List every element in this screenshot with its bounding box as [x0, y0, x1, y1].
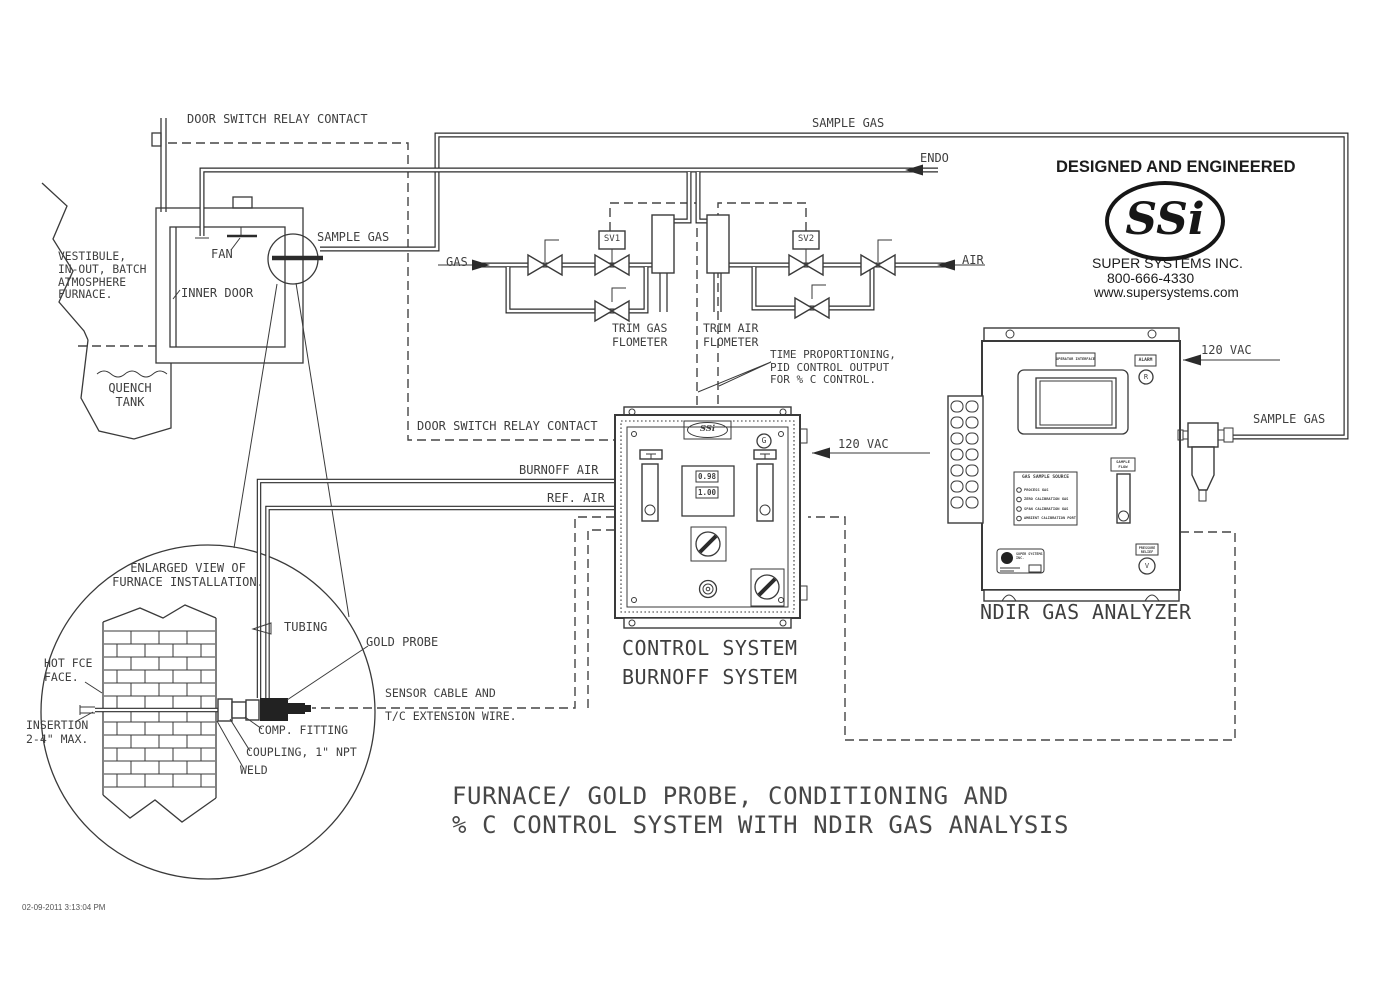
enlarged-view-label: ENLARGED VIEW OF FURNACE INSTALLATION. — [104, 561, 272, 589]
air-bypass-pipe — [754, 267, 872, 308]
filter-fitting — [1224, 428, 1233, 442]
sensor-cable-label-1: SENSOR CABLE AND — [385, 687, 496, 701]
analyzer-top-tab — [984, 328, 1179, 341]
relief-label: PRESSURE RELIEF — [1136, 546, 1158, 555]
ref-flow-tube — [757, 464, 773, 521]
vestibule-label: VESTIBULE, IN-OUT, BATCH ATMOSPHERE FURN… — [58, 251, 146, 302]
wall-top-jag — [103, 605, 216, 622]
filter-drain — [1199, 490, 1206, 501]
filter-head — [1188, 423, 1218, 447]
ref-air-pipe — [268, 508, 616, 698]
gas-bypass-handle — [612, 288, 626, 302]
endo-pipe — [202, 170, 938, 236]
sensor-cable-wire — [312, 517, 615, 708]
endo-label: ENDO — [920, 151, 949, 165]
controller-pv-value: 0.98 — [696, 473, 718, 482]
drawing-title-line1: FURNACE/ GOLD PROBE, CONDITIONING AND — [452, 782, 1009, 810]
air-flow-arrow — [937, 260, 955, 271]
interface-label: OPERATOR INTERFACE — [1056, 357, 1095, 361]
trim-air-flowmeter — [707, 215, 729, 273]
gold-probe-label: GOLD PROBE — [366, 635, 438, 649]
compression-fitting — [246, 700, 259, 720]
burnoff-air-pipe — [259, 481, 615, 698]
endo-flow-arrow — [905, 165, 923, 176]
weld-coupling — [218, 699, 232, 721]
inner-door-label: INNER DOOR — [181, 286, 253, 300]
control-logo-text: SSi — [687, 424, 728, 434]
quench-water-line — [97, 371, 167, 377]
schematic-linework — [0, 0, 1376, 1000]
control-system-label: CONTROL SYSTEM BURNOFF SYSTEM — [622, 634, 798, 691]
source-option-2: ZERO CALIBRATION GAS — [1024, 497, 1068, 501]
source-option-1: PROCESS GAS — [1024, 488, 1048, 492]
probe-head — [260, 698, 288, 721]
source-option-3: SPAN CALIBRATION GAS — [1024, 507, 1068, 511]
filter-bowl — [1192, 447, 1214, 490]
wall-bottom-jag — [103, 795, 216, 822]
ground-label: G — [757, 436, 771, 445]
quench-tank-label: QUENCH TANK — [95, 381, 165, 409]
door-switch-relay-label-mid: DOOR SWITCH RELAY CONTACT — [417, 419, 598, 433]
tubing-label: TUBING — [284, 620, 327, 634]
branding-website: www.supersystems.com — [1094, 285, 1239, 301]
trim-air-flowmeter-tube — [714, 273, 721, 312]
trim-gas-flowmeter-tube — [660, 273, 667, 312]
air-label: AIR — [962, 253, 984, 267]
time-prop-leaders — [698, 362, 771, 392]
control-vac-label: 120 VAC — [838, 437, 889, 451]
sv1-label: SV1 — [599, 234, 625, 245]
air-bypass-handle — [812, 285, 826, 299]
ssi-logo: SSi — [1105, 181, 1225, 261]
sample-gas-label-analyzer: SAMPLE GAS — [1253, 412, 1325, 426]
tc-extension-wire — [588, 530, 615, 708]
door-switch-relay-label-top: DOOR SWITCH RELAY CONTACT — [187, 112, 368, 126]
insertion-label: INSERTION 2-4" MAX. — [26, 719, 88, 746]
probe-cable-end — [305, 705, 311, 712]
gold-probe-leader — [287, 646, 368, 700]
tag-logo-dot — [1001, 552, 1013, 564]
drawing-title-line2: % C CONTROL SYSTEM WITH NDIR GAS ANALYSI… — [452, 811, 1069, 839]
relief-valve-glyph: V — [1141, 562, 1153, 570]
trim-air-out-pipe — [698, 172, 709, 221]
coupling-hex — [232, 702, 246, 718]
trim-gas-flometer-label: TRIM GAS FLOMETER — [612, 322, 667, 349]
filter-fitting — [1218, 430, 1224, 440]
gas-bypass-valve — [595, 301, 629, 321]
serial-tag-text: SUPER SYSTEMS INC. — [1016, 552, 1043, 561]
burnoff-flow-tube — [642, 464, 658, 521]
reset-label: R — [1139, 373, 1153, 381]
source-option-4: AMBIENT CALIBRATION PORT — [1024, 516, 1076, 520]
fan-label: FAN — [211, 247, 233, 261]
trim-gas-out-pipe — [672, 172, 689, 221]
door-switch-contact — [152, 133, 161, 146]
ndir-analyzer-label: NDIR GAS ANALYZER — [980, 601, 1192, 625]
gas-label: GAS — [446, 255, 468, 269]
probe-connector — [288, 703, 305, 714]
sample-gas-label-top: SAMPLE GAS — [812, 116, 884, 130]
gas-flow-arrow — [472, 260, 490, 271]
sample-flow-label: SAMPLE FLOW — [1111, 460, 1135, 470]
plot-timestamp: 02-09-2011 3:13:04 PM — [22, 903, 105, 912]
controller-sv-value: 1.00 — [696, 489, 718, 498]
door-switch-bar — [161, 118, 166, 212]
ref-air-label: REF. AIR — [547, 491, 605, 505]
sensor-cable-label-2: T/C EXTENSION WIRE. — [385, 710, 517, 724]
control-bottom-tab — [624, 618, 791, 628]
probe-tip — [80, 705, 95, 715]
sample-gas-label-furnace: SAMPLE GAS — [317, 230, 389, 244]
weld-leader — [217, 721, 244, 769]
burnoff-air-label: BURNOFF AIR — [519, 463, 598, 477]
comp-fitting-label: COMP. FITTING — [258, 724, 348, 738]
schematic-page: DOOR SWITCH RELAY CONTACT SAMPLE GAS END… — [0, 0, 1376, 1000]
ssi-logo-text: SSi — [1125, 194, 1204, 245]
coupling-label: COUPLING, 1" NPT — [246, 746, 357, 760]
trim-gas-flowmeter — [652, 215, 674, 273]
furnace-vent — [233, 197, 252, 208]
air-bypass-valve — [795, 298, 829, 318]
time-proportioning-label: TIME PROPORTIONING, PID CONTROL OUTPUT F… — [770, 349, 896, 387]
alarm-label: ALARM — [1135, 358, 1156, 363]
branding-tagline: DESIGNED AND ENGINEERED — [1056, 158, 1296, 177]
gas-sample-source-title: GAS SAMPLE SOURCE — [1014, 475, 1077, 480]
hot-face-label: HOT FCE FACE. — [44, 657, 92, 684]
analyzer-vac-label: 120 VAC — [1201, 343, 1252, 357]
hinge — [800, 586, 807, 600]
projection-line-right — [296, 283, 349, 617]
weld-label: WELD — [240, 764, 268, 778]
filter-fitting — [1183, 431, 1188, 439]
trim-air-flometer-label: TRIM AIR FLOMETER — [703, 322, 758, 349]
hinge — [800, 429, 807, 443]
control-vac-arrow — [812, 448, 830, 459]
analyzer-vac-arrow — [1183, 355, 1201, 366]
sv2-label: SV2 — [793, 234, 819, 245]
